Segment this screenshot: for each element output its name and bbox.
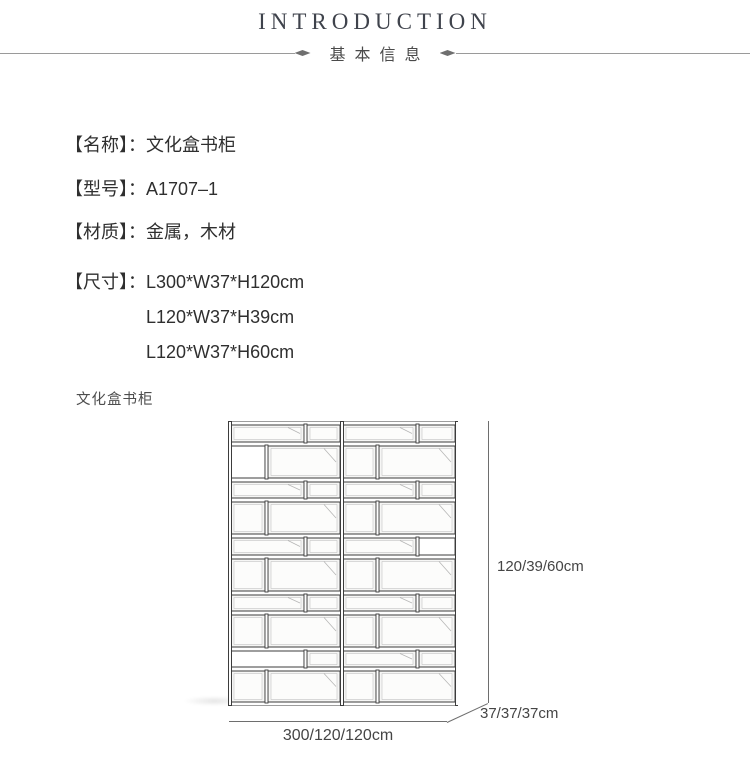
spec-row-size: 【尺寸】： L300*W37*H120cm L120*W37*H39cm L12… (65, 270, 304, 375)
spec-size-values: L300*W37*H120cm L120*W37*H39cm L120*W37*… (146, 270, 304, 375)
spec-value: A1707–1 (146, 177, 218, 201)
height-dimension-label: 120/39/60cm (497, 558, 584, 575)
spec-value: 文化盒书柜 (146, 133, 236, 157)
divider-line-right (456, 53, 750, 54)
divider-line-left (0, 53, 295, 54)
spec-label: 【材质】： (65, 220, 146, 244)
height-dimension-line (488, 421, 489, 703)
spec-row-name: 【名称】： 文化盒书柜 (65, 133, 236, 157)
spec-label: 【尺寸】： (65, 270, 146, 294)
section-divider: 基本信息 (0, 44, 750, 62)
depth-dimension-label: 37/37/37cm (480, 705, 558, 722)
width-dimension-line (229, 721, 447, 722)
spec-label: 【名称】： (65, 133, 146, 157)
spec-value: 金属，木材 (146, 220, 236, 244)
product-introduction-page: INTRODUCTION 基本信息 【名称】： 文化盒书柜 【型号】： A170… (0, 0, 750, 769)
spec-row-material: 【材质】： 金属，木材 (65, 220, 236, 244)
bookshelf-drawing (228, 421, 458, 706)
size-line: L300*W37*H120cm (146, 270, 304, 294)
spec-row-model: 【型号】： A1707–1 (65, 177, 218, 201)
figure-caption: 文化盒书柜 (76, 388, 154, 409)
size-line: L120*W37*H60cm (146, 340, 304, 364)
width-dimension-label: 300/120/120cm (229, 727, 447, 745)
diamond-icon (295, 50, 311, 56)
section-subtitle: 基本信息 (321, 41, 430, 65)
diamond-icon (440, 50, 456, 56)
page-title: INTRODUCTION (0, 9, 750, 35)
size-line: L120*W37*H39cm (146, 305, 304, 329)
spec-label: 【型号】： (65, 177, 146, 201)
